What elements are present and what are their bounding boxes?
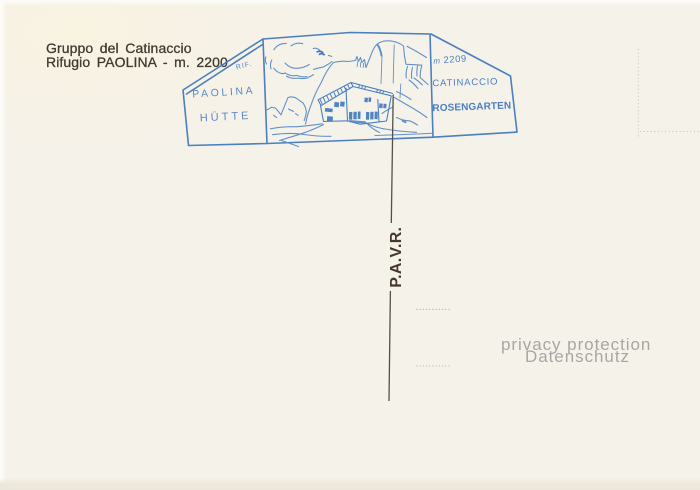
svg-text:RIF.: RIF. [235,61,253,72]
svg-text:CATINACCIO: CATINACCIO [432,76,498,89]
svg-text:m 2209: m 2209 [433,53,467,66]
svg-text:HÜTTE: HÜTTE [200,110,252,125]
svg-text:PAOLINA: PAOLINA [192,85,256,101]
svg-text:P.A.V.R.: P.A.V.R. [388,227,405,288]
svg-text:ROSENGARTEN: ROSENGARTEN [432,101,511,115]
